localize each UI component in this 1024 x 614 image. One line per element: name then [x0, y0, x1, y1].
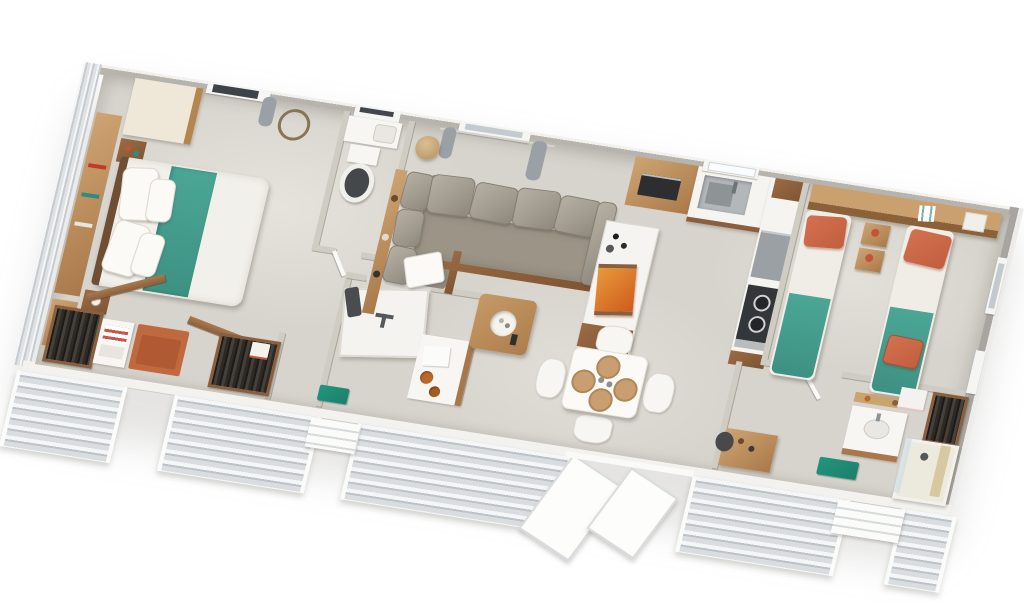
orange-food-tray [594, 264, 637, 316]
sink-basin [704, 182, 735, 207]
master-wardrobe [122, 78, 203, 145]
bath2-white-towels [897, 387, 927, 410]
twin1-coral-pillow [803, 215, 848, 249]
siding-section-1 [0, 370, 128, 463]
entry-mat [135, 334, 181, 369]
wardrobe-clothes-right [207, 333, 281, 397]
shelf-books [918, 205, 936, 222]
shelf-box [962, 212, 988, 233]
washstand-towel [422, 346, 451, 367]
wardrobe-towel-shelf [250, 342, 271, 358]
wc-basin [372, 124, 398, 145]
floorplan-scene [0, 0, 1024, 614]
mobile-home [25, 64, 1020, 515]
